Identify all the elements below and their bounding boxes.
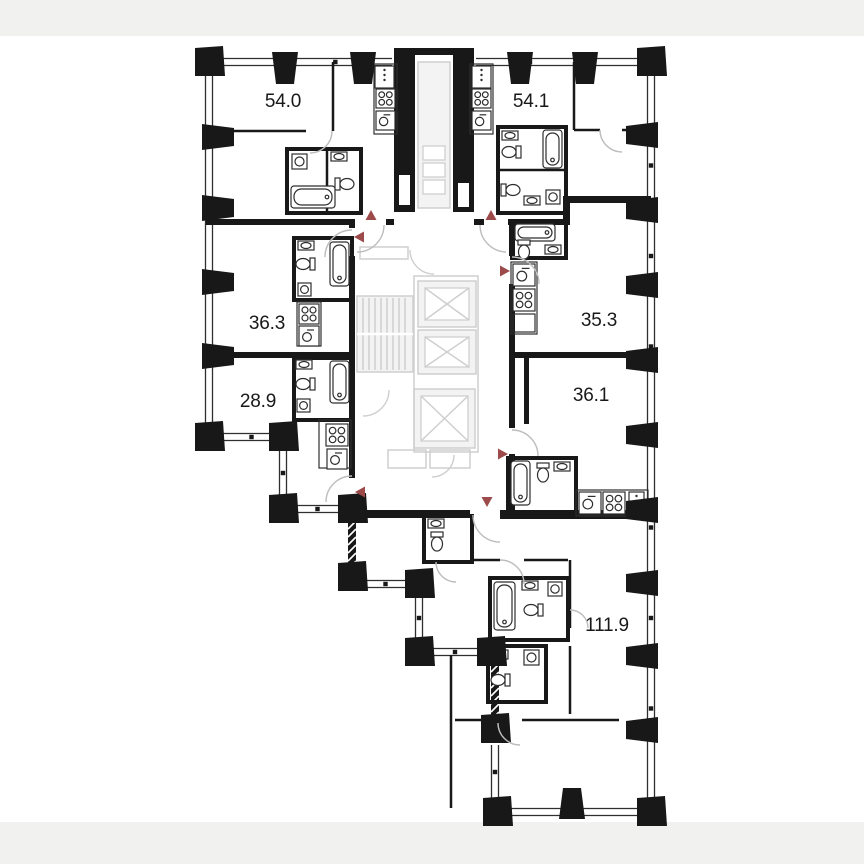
washer-body	[524, 650, 539, 665]
fridge-dot	[383, 74, 385, 76]
column	[202, 269, 234, 295]
corner-column	[405, 636, 435, 666]
window-mullion-tick	[417, 616, 421, 620]
column	[507, 52, 533, 84]
wall-segment	[206, 219, 352, 225]
window-mullion-tick	[649, 525, 653, 529]
sink-icon	[502, 131, 518, 140]
wall-segment	[524, 358, 529, 424]
fridge-icon	[472, 66, 491, 88]
sink-unit	[513, 264, 535, 286]
corner-column	[338, 493, 368, 523]
toilet-bowl	[340, 179, 354, 190]
sink-icon	[554, 462, 570, 471]
sink-unit	[472, 111, 491, 130]
stove-icon	[326, 424, 348, 446]
toilet-bowl	[296, 379, 310, 390]
window-mullion-tick	[281, 471, 285, 475]
vent-duct	[423, 146, 445, 160]
fridge-icon	[375, 66, 394, 88]
kitchen-sink-icon	[299, 326, 319, 346]
toilet-tank	[505, 674, 510, 686]
sink-icon	[331, 152, 347, 161]
wall-segment	[386, 219, 394, 225]
unit-label-54-0: 54.0	[265, 91, 301, 112]
stove-icon	[376, 89, 395, 108]
stove-top	[472, 89, 491, 108]
unit-label-36-3: 36.3	[249, 313, 285, 334]
toilet-bowl	[506, 185, 520, 196]
corner-column	[405, 568, 435, 598]
corner-column	[338, 561, 368, 591]
sink-icon	[296, 360, 312, 369]
kitchen-sink-icon	[579, 492, 601, 514]
bathtub-icon	[330, 242, 349, 286]
toilet-tank	[310, 378, 315, 390]
stove-top	[603, 492, 625, 514]
toilet-bowl	[296, 259, 310, 270]
sink-icon	[524, 196, 540, 205]
toilet-icon	[518, 240, 530, 259]
toilet-bowl	[519, 245, 530, 259]
column	[626, 272, 658, 298]
elevator-icon	[418, 281, 476, 327]
toilet-icon	[537, 463, 549, 482]
washing-machine-icon	[546, 190, 560, 204]
washing-machine-icon	[292, 154, 307, 169]
kitchen-sink-icon	[472, 111, 491, 130]
sink-unit	[327, 449, 347, 469]
toilet-icon	[491, 674, 510, 686]
toilet-bowl	[524, 605, 538, 616]
vent-duct	[423, 163, 445, 177]
column	[350, 52, 376, 84]
toilet-icon	[501, 184, 520, 196]
washer-body	[297, 399, 310, 412]
toilet-tank	[538, 604, 543, 616]
unit-label-36-1: 36.1	[573, 385, 609, 406]
bathtub-icon	[515, 224, 555, 241]
toilet-icon	[335, 178, 354, 190]
window-mullion-tick	[315, 507, 319, 511]
column	[572, 52, 598, 84]
toilet-tank	[537, 463, 549, 468]
column	[272, 52, 298, 84]
corner-column	[637, 46, 667, 76]
washer-body	[548, 582, 562, 596]
toilet-tank	[310, 258, 315, 270]
column	[626, 643, 658, 669]
sink-icon	[298, 241, 314, 250]
column	[626, 497, 658, 523]
fridge-dot	[480, 69, 482, 71]
stove-icon	[299, 304, 319, 324]
fridge-dot	[635, 495, 637, 497]
sink-unit	[299, 326, 319, 346]
column	[559, 788, 585, 819]
kitchen-sink-icon	[327, 449, 347, 469]
window-mullion-tick	[649, 706, 653, 710]
bathtub-icon	[543, 130, 562, 168]
vent-shaft-niche	[457, 182, 470, 208]
window-mullion-tick	[649, 163, 653, 167]
toilet-tank	[431, 532, 443, 537]
column	[626, 347, 658, 373]
toilet-bowl	[502, 147, 516, 158]
column	[202, 195, 234, 221]
unit-label-111-9: 111.9	[585, 615, 629, 636]
kitchen-sink-icon	[376, 111, 395, 130]
toilet-bowl	[432, 537, 443, 551]
corner-column	[483, 796, 513, 826]
corner-column	[477, 636, 507, 666]
unit-label-54-1: 54.1	[513, 91, 549, 112]
toilet-icon	[502, 146, 521, 158]
fridge-dot	[480, 79, 482, 81]
stove-top	[376, 89, 395, 108]
toilet-tank	[516, 146, 521, 158]
fridge-dot	[383, 69, 385, 71]
window-mullion-tick	[493, 770, 497, 774]
corner-column	[637, 796, 667, 826]
washer-body	[292, 154, 307, 169]
window-mullion-tick	[453, 650, 457, 654]
corner-column	[481, 713, 511, 743]
stove-top	[513, 289, 535, 311]
vent-duct	[423, 180, 445, 194]
wall-segment	[349, 219, 355, 228]
washing-machine-icon	[297, 399, 310, 412]
bathtub-icon	[330, 361, 349, 403]
kitchen-sink-icon	[513, 264, 535, 286]
top-margin-strip	[0, 0, 864, 36]
toilet-bowl	[491, 675, 505, 686]
column	[202, 343, 234, 369]
corner-column	[195, 46, 225, 76]
window-mullion-tick	[649, 616, 653, 620]
column	[626, 422, 658, 448]
elevator-icon	[414, 389, 475, 448]
column	[202, 124, 234, 150]
toilet-icon	[296, 378, 315, 390]
column	[626, 197, 658, 223]
stove-icon	[603, 492, 625, 514]
toilet-icon	[431, 532, 443, 551]
vent-shaft-niche	[398, 174, 411, 206]
corner-column	[269, 421, 299, 451]
column	[626, 570, 658, 596]
column	[626, 717, 658, 743]
toilet-bowl	[538, 468, 549, 482]
unit-label-35-3: 35.3	[581, 310, 617, 331]
floor-plan-page: 54.0 54.1 36.3 35.3 28.9 36.1 111.9	[0, 0, 864, 864]
washing-machine-icon	[298, 283, 311, 296]
stove-top	[326, 424, 348, 446]
toilet-icon	[524, 604, 543, 616]
column	[626, 122, 658, 148]
sink-unit	[376, 111, 395, 130]
bathtub-icon	[511, 461, 530, 505]
washer-body	[298, 283, 311, 296]
toilet-tank	[501, 184, 506, 196]
washing-machine-icon	[548, 582, 562, 596]
elevator-icon	[418, 330, 476, 374]
washer-body	[546, 190, 560, 204]
washing-machine-icon	[524, 650, 539, 665]
window-mullion-tick	[649, 254, 653, 258]
stove-top	[299, 304, 319, 324]
corner-column	[195, 421, 225, 451]
corner-column	[269, 493, 299, 523]
fridge-dot	[480, 74, 482, 76]
wall-segment	[474, 219, 484, 225]
stove-icon	[513, 289, 535, 311]
window-mullion-tick	[383, 582, 387, 586]
sink-icon	[428, 519, 444, 528]
toilet-tank	[518, 240, 530, 245]
floor-plan-image: 54.0 54.1 36.3 35.3 28.9 36.1 111.9	[0, 0, 864, 864]
toilet-tank	[335, 178, 340, 190]
unit-label-28-9: 28.9	[240, 391, 276, 412]
toilet-icon	[296, 258, 315, 270]
fridge-dot	[383, 79, 385, 81]
sink-icon	[545, 245, 561, 254]
bottom-margin-strip	[0, 822, 864, 864]
window-mullion-tick	[249, 435, 253, 439]
bathtub-icon	[494, 582, 515, 630]
bathtub-icon	[291, 186, 335, 208]
stove-icon	[472, 89, 491, 108]
sink-unit	[579, 492, 601, 514]
